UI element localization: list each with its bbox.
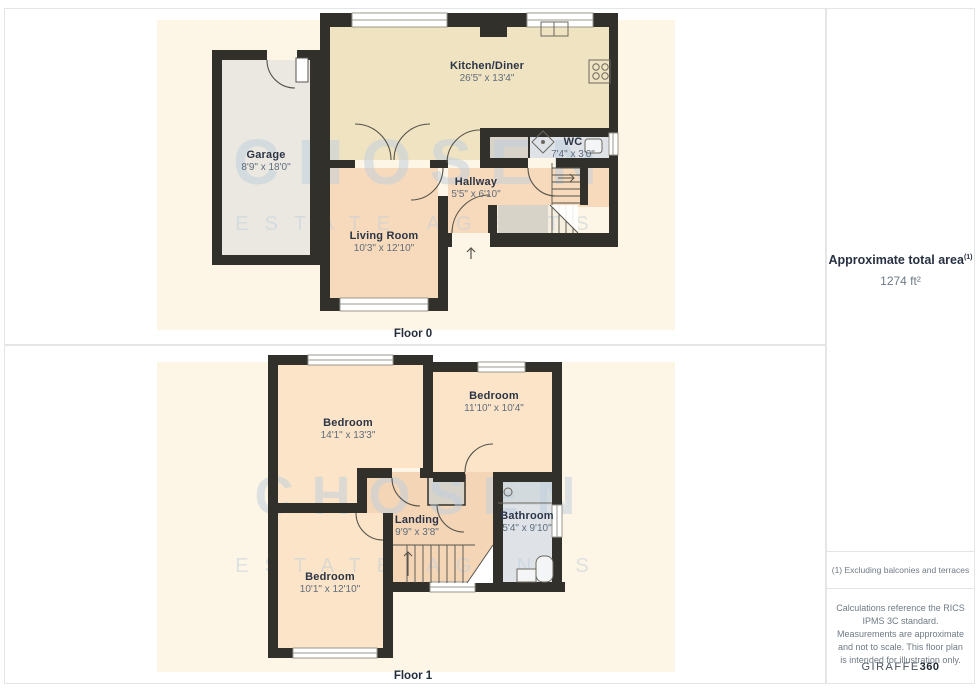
brand-suffix: 360	[920, 661, 940, 673]
sidebar-divider	[826, 551, 975, 552]
room-label-kitchen: Kitchen/Diner 26'5" x 13'4"	[450, 60, 524, 85]
room-label-hallway: Hallway 5'5" x 6'10"	[451, 176, 500, 201]
total-area-value: 1274 ft²	[826, 274, 975, 288]
total-area-block: Approximate total area(1) 1274 ft²	[826, 253, 975, 288]
room-label-garage: Garage 8'9" x 18'0"	[241, 149, 290, 174]
sidebar-divider	[826, 588, 975, 589]
floor0-plan-svg: CHOSEN ESTATE AGENTS	[157, 8, 675, 345]
floor1-label: Floor 1	[394, 670, 432, 682]
brand-logo: GIRAFFE360	[826, 661, 975, 673]
room-label-bedroom-bottom: Bedroom 10'1" x 12'10"	[300, 571, 360, 596]
floor0-label: Floor 0	[394, 328, 432, 340]
brand-name: GIRAFFE	[861, 661, 919, 673]
room-label-living-room: Living Room 10'3" x 12'10"	[350, 230, 419, 255]
garage-door-leaf	[296, 58, 308, 82]
room-label-bedroom-large: Bedroom 14'1" x 13'3"	[321, 417, 376, 442]
room-label-wc: WC 7'4" x 3'0"	[551, 136, 595, 161]
room-label-bedroom-right: Bedroom 11'10" x 10'4"	[464, 390, 524, 415]
total-area-label: Approximate total area(1)	[826, 253, 975, 267]
bath-sink-icon	[536, 556, 553, 582]
room-label-bathroom: Bathroom 5'4" x 9'10"	[500, 510, 554, 535]
sidebar: Approximate total area(1) 1274 ft² (1) E…	[826, 8, 975, 684]
watermark-line2: ESTATE AGENTS	[235, 213, 605, 235]
toilet-icon	[517, 569, 536, 582]
footnote-marker: (1)	[964, 254, 973, 261]
sidebar-footnote: (1) Excluding balconies and terraces	[826, 565, 975, 575]
room-label-landing: Landing 9'9" x 3'8"	[395, 514, 439, 539]
sidebar-disclaimer: Calculations reference the RICS IPMS 3C …	[836, 602, 965, 667]
